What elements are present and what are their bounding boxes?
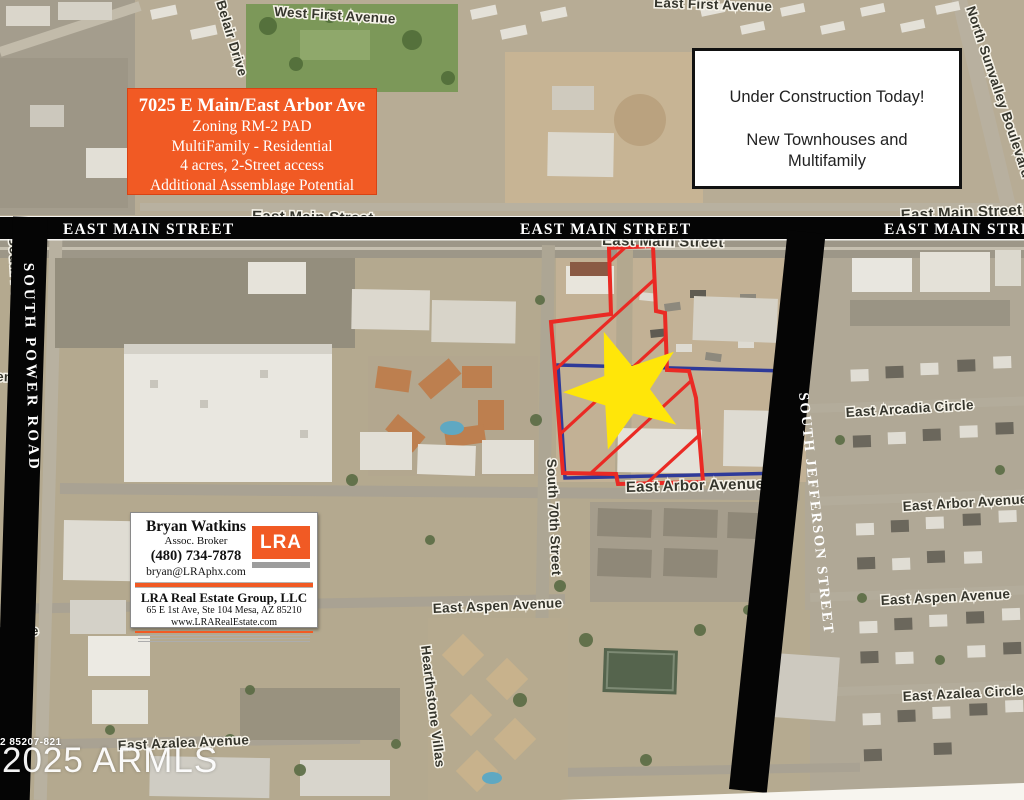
armls-watermark: 2025 ARMLS [2,741,218,781]
construction-line-3: Multifamily [695,151,959,172]
card-divider-top [135,582,313,588]
fine-print [138,635,310,644]
broker-card: Bryan Watkins Assoc. Broker (480) 734-78… [130,512,318,628]
listing-assemblage: Additional Assemblage Potential [128,176,376,196]
lra-logo-text: LRA [252,526,310,559]
broker-name: Bryan Watkins [140,518,252,535]
broker-email: bryan@LRAphx.com [140,565,252,579]
lra-logo: LRA [252,518,310,579]
construction-gap [695,108,959,130]
bar-label-east-main-left: EAST MAIN STREET [63,221,234,238]
listing-use: MultiFamily - Residential [128,137,376,157]
construction-line-1: Under Construction Today! [695,87,959,108]
listing-title: 7025 E Main/East Arbor Ave [128,95,376,117]
broker-company: LRA Real Estate Group, LLC [131,590,317,605]
broker-role: Assoc. Broker [140,535,252,548]
broker-website: www.LRARealEstate.com [131,617,317,629]
card-divider-bottom [135,631,313,633]
bar-label-east-main-center: EAST MAIN STREET [520,221,691,238]
broker-phone: (480) 734-7878 [140,548,252,565]
lra-logo-bar [252,562,310,568]
listing-acreage: 4 acres, 2-Street access [128,156,376,176]
construction-line-2: New Townhouses and [695,130,959,151]
label-east-arbor-center: East Arbor Avenue [626,475,765,496]
bar-label-east-main-right: EAST MAIN STREET [884,221,1024,238]
listing-info-box: 7025 E Main/East Arbor Ave Zoning RM-2 P… [127,88,377,195]
construction-note-box: Under Construction Today! New Townhouses… [692,48,962,189]
real-estate-flyer-map: West First Avenue Belair Drive East Firs… [0,0,1024,800]
broker-address: 65 E 1st Ave, Ste 104 Mesa, AZ 85210 [131,605,317,617]
listing-zoning: Zoning RM-2 PAD [128,117,376,137]
